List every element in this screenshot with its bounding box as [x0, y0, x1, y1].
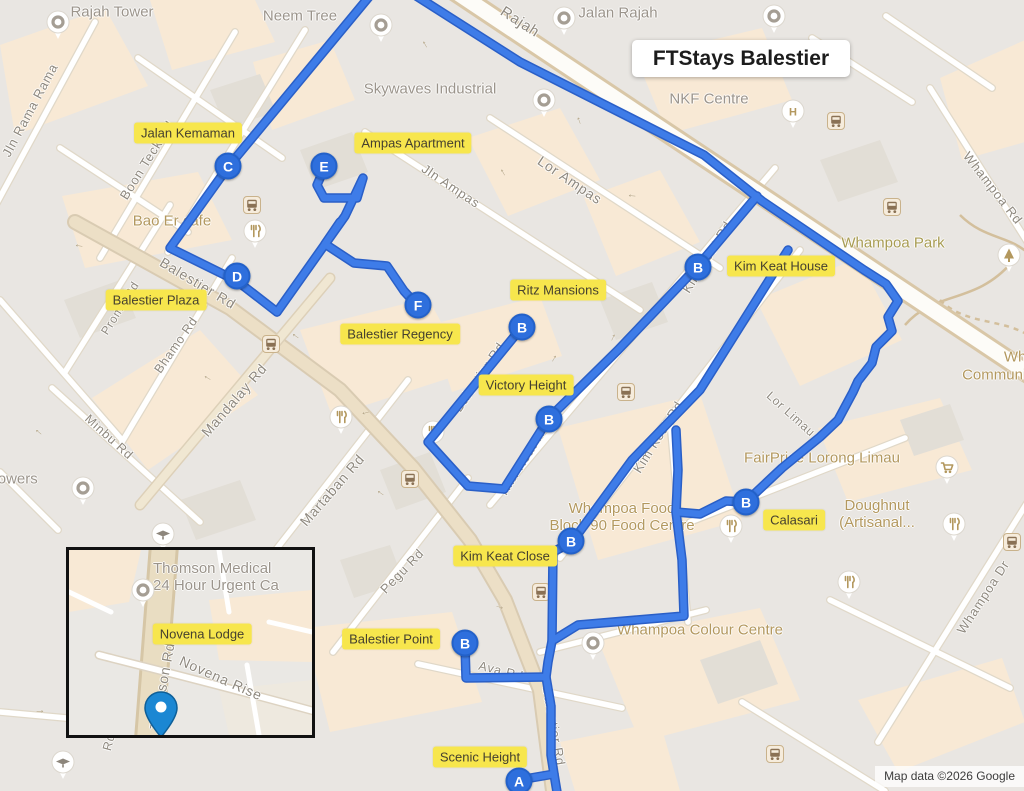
property-label: Balestier Plaza: [106, 290, 207, 311]
property-label: Calasari: [763, 510, 825, 531]
property-label: Ritz Mansions: [510, 280, 606, 301]
poi-label: Thomson Medical24 Hour Urgent Ca: [153, 560, 279, 594]
property-label: Ampas Apartment: [354, 133, 471, 154]
novena-inset-map[interactable]: Thomson RdNovena RiseThomson Medical24 H…: [66, 547, 315, 738]
street-label: Novena Rise: [177, 653, 265, 704]
property-label: Balestier Regency: [340, 324, 460, 345]
property-label: Jalan Kemaman: [134, 123, 242, 144]
property-label: Novena Lodge: [153, 624, 252, 645]
property-label: Kim Keat House: [727, 256, 835, 277]
property-label: Scenic Height: [433, 747, 527, 768]
property-label: Victory Height: [479, 375, 574, 396]
page-title: FTStays Balestier: [632, 40, 850, 77]
property-label: Balestier Point: [342, 629, 440, 650]
map-canvas[interactable]: Jln Rama RamaBoon Teck RdProme RdBalesti…: [0, 0, 1024, 791]
map-attribution: Map data ©2026 Google: [875, 766, 1024, 787]
inset-labels-layer: Thomson RdNovena RiseThomson Medical24 H…: [69, 550, 312, 735]
property-label: Kim Keat Close: [453, 546, 557, 567]
